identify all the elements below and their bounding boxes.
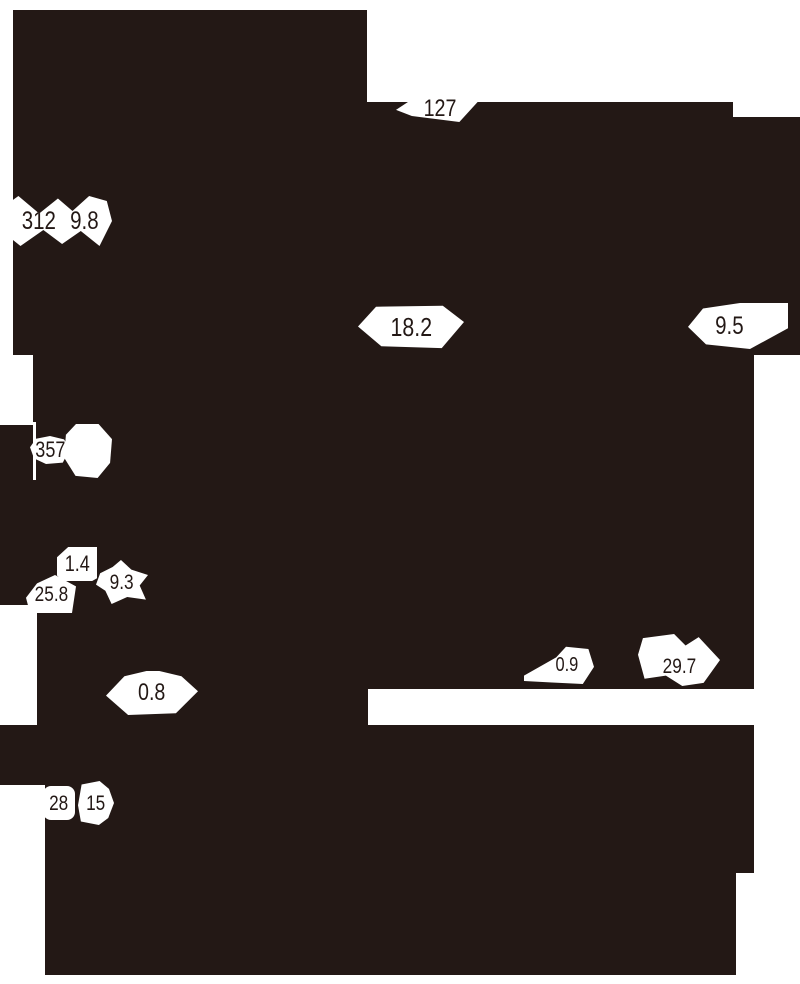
- dimension-value-28-halo: 28: [43, 786, 75, 820]
- drawing-canvas: 127 312 9.8 18.2 9.5 357 1.4 25.8 9.3 0.…: [0, 0, 800, 984]
- dimension-value-9-8: 9.8: [70, 209, 99, 234]
- dimension-value-25-8: 25.8: [34, 584, 68, 605]
- dimension-value-15: 15: [86, 793, 105, 814]
- dimension-value-9-3: 9.3: [110, 572, 134, 593]
- dimension-value-1-4: 1.4: [64, 553, 89, 575]
- dimension-label-357: 357: [28, 422, 112, 480]
- ink-region-lower-a: [0, 725, 754, 785]
- dimension-value-28: 28: [49, 793, 68, 814]
- dimension-value-127: 127: [424, 97, 457, 121]
- dimension-value-9-5: 9.5: [715, 314, 744, 339]
- dimension-value-18-2: 18.2: [390, 314, 431, 340]
- dimension-value-29-7: 29.7: [662, 656, 696, 677]
- dimension-value-357-halo: 357: [30, 436, 70, 464]
- dimension-label-1-4: 1.4: [57, 547, 97, 581]
- dimension-value-15-halo: 15: [78, 781, 114, 825]
- dimension-value-357: 357: [35, 439, 65, 461]
- callout-blob: [64, 424, 112, 478]
- ink-region-left-of-gap: [37, 688, 368, 725]
- dimension-label-312-9-8: 312 9.8: [8, 196, 112, 246]
- dimension-label-28-15: 28 15: [43, 781, 115, 825]
- ink-region-top-left: [13, 10, 367, 103]
- ink-region-bottom: [45, 873, 736, 975]
- dimension-value-0-9: 0.9: [556, 655, 579, 675]
- ink-region-top-band: [13, 102, 733, 118]
- ink-region-middle-a: [33, 355, 754, 425]
- ink-region-lower-b: [45, 785, 754, 873]
- dimension-value-0-8: 0.8: [138, 681, 165, 705]
